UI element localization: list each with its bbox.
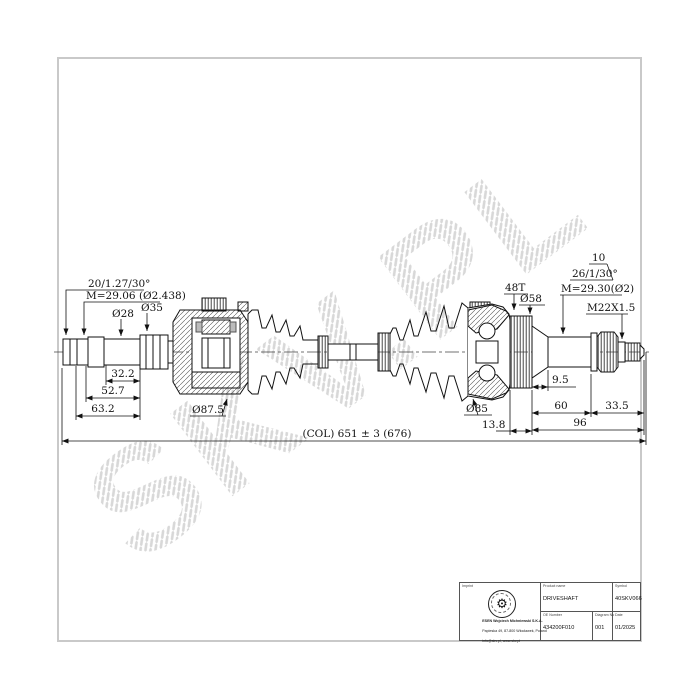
right-spline-spec: 26/1/30° <box>572 268 618 280</box>
product-name-cell: Product name DRIVESHAFT <box>541 583 613 612</box>
outer-cv-joint <box>468 304 548 400</box>
date-cell: Date 01/2025 <box>613 612 641 640</box>
company-address: Papieska 49, 87-800 Włocławek, Poland <box>482 629 518 634</box>
diagram-no-value: 001 <box>595 624 604 630</box>
dim-9-5: 9.5 <box>552 374 569 386</box>
oe-number-cell: OE Number 434200F010 <box>541 612 593 640</box>
inner-stub-spline <box>63 335 173 369</box>
note-10: 10 <box>592 252 605 264</box>
dia-28-label: Ø28 <box>112 308 134 320</box>
stamp-ring <box>491 593 511 613</box>
overall-length: (COL) 651 ± 3 (676) <box>303 428 412 440</box>
dim-32-2: 32.2 <box>111 368 134 380</box>
middle-shaft <box>328 344 378 360</box>
driveshaft-technical-drawing: SKV.PL <box>0 0 700 700</box>
oe-number-value: 434200F010 <box>543 624 572 630</box>
dim-96: 96 <box>573 417 587 429</box>
product-name-label: Product name <box>543 584 573 588</box>
outer-stub-axle <box>548 332 644 372</box>
left-pin-measure: M=29.06 (Ø2.438) <box>86 290 186 302</box>
product-name-value: DRIVESHAFT <box>543 595 585 601</box>
date-value: 01/2025 <box>615 624 630 630</box>
dim-13-8: 13.8 <box>482 419 505 431</box>
company-contact: info@skv.pl, www.skv.pl <box>482 639 518 644</box>
hub-spline <box>597 332 618 372</box>
boot-clamp-outer-small <box>378 333 390 371</box>
diagram-no-cell: Diagram No 001 <box>593 612 613 640</box>
symbol-value: 40SKV066 <box>615 595 630 601</box>
oe-number-label: OE Number <box>543 613 564 617</box>
imprint-label: Imprint <box>462 584 497 588</box>
company-info: ESEN Wojciech Michniewski S.K.A. Papiesk… <box>460 619 541 649</box>
title-block-imprint-cell: Imprint ⚙ ESEN Wojciech Michniewski S.K.… <box>460 583 541 640</box>
dia-35-label: Ø35 <box>141 302 163 314</box>
dim-52-7: 52.7 <box>101 385 124 397</box>
symbol-cell: Symbol 40SKV066 <box>613 583 641 612</box>
date-label: Date <box>615 613 626 617</box>
inner-cv-housing <box>173 298 248 394</box>
company-name: ESEN Wojciech Michniewski S.K.A. <box>482 619 518 624</box>
thread-spec: M22X1.5 <box>587 302 635 314</box>
dim-33-5: 33.5 <box>605 400 628 412</box>
abs-tone-ring <box>510 316 532 388</box>
thread-tip <box>625 343 640 361</box>
diagram-no-label: Diagram No <box>595 613 602 617</box>
dia-58-label: Ø58 <box>520 293 542 305</box>
brand-stamp-logo: ⚙ <box>488 590 516 618</box>
dia-85-label: Ø85 <box>466 403 488 415</box>
dia-87-5-label: Ø87.5 <box>192 404 224 416</box>
title-block: Imprint ⚙ ESEN Wojciech Michniewski S.K.… <box>459 582 641 641</box>
left-spline-spec: 20/1.27/30° <box>88 278 150 290</box>
right-pin-measure: M=29.30(Ø2) <box>561 283 634 295</box>
boot-clamp-inner <box>318 336 328 368</box>
symbol-label: Symbol <box>615 584 626 588</box>
dim-63-2: 63.2 <box>91 403 114 415</box>
dim-60: 60 <box>554 400 567 412</box>
